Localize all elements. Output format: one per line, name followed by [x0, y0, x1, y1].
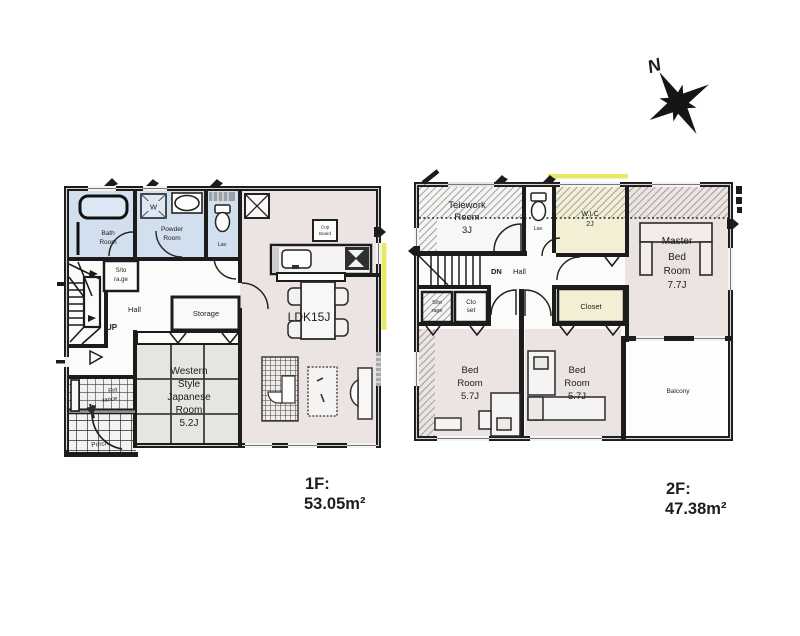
svg-text:Clo: Clo — [466, 299, 476, 306]
svg-text:47.38m²: 47.38m² — [665, 500, 727, 518]
svg-text:1F:: 1F: — [305, 475, 330, 493]
svg-text:Room: Room — [564, 378, 589, 389]
svg-text:W: W — [150, 203, 158, 212]
svg-text:S/to: S/to — [116, 268, 127, 274]
svg-text:2J: 2J — [586, 221, 593, 228]
svg-text:5.7J: 5.7J — [568, 391, 586, 402]
svg-text:Room: Room — [457, 378, 482, 389]
svg-text:ra.ge: ra.ge — [114, 277, 128, 283]
svg-text:Japanese: Japanese — [167, 392, 211, 403]
svg-text:Lav: Lav — [218, 242, 227, 248]
svg-text:W.I.C: W.I.C — [581, 211, 598, 218]
svg-text:Style: Style — [178, 379, 201, 390]
svg-text:Bath: Bath — [101, 230, 115, 237]
svg-text:Board: Board — [319, 231, 332, 236]
svg-text:Western: Western — [170, 366, 207, 377]
svg-text:Room: Room — [99, 239, 116, 246]
svg-text:3J: 3J — [462, 225, 472, 236]
svg-text:Powder: Powder — [161, 226, 184, 233]
svg-text:2F:: 2F: — [666, 480, 691, 498]
svg-text:Bed: Bed — [462, 365, 479, 376]
svg-text:Lav: Lav — [534, 226, 543, 232]
svg-text:S/to: S/to — [432, 300, 442, 306]
svg-text:rage: rage — [431, 308, 442, 314]
svg-text:Room: Room — [664, 266, 691, 277]
svg-text:Room: Room — [176, 405, 203, 416]
svg-text:Balcony: Balcony — [666, 388, 690, 395]
svg-text:Hall: Hall — [513, 267, 526, 276]
svg-text:Bed: Bed — [569, 365, 586, 376]
svg-text:UP: UP — [106, 323, 118, 332]
svg-text:Hall: Hall — [128, 305, 141, 314]
svg-text:Room: Room — [163, 235, 180, 242]
svg-text:DN: DN — [491, 267, 502, 276]
svg-text:Bed: Bed — [668, 252, 686, 263]
svg-text:5.7J: 5.7J — [461, 391, 479, 402]
svg-text:Telework: Telework — [448, 200, 486, 211]
svg-text:Closet: Closet — [580, 302, 602, 311]
svg-text:5.2J: 5.2J — [180, 418, 199, 429]
svg-text:LDK15J: LDK15J — [288, 310, 331, 324]
svg-text:Room: Room — [454, 212, 479, 223]
svg-text:7.7J: 7.7J — [668, 280, 687, 291]
svg-text:Storage: Storage — [193, 309, 219, 318]
svg-text:Master: Master — [662, 236, 693, 247]
svg-text:Cup: Cup — [321, 225, 330, 230]
svg-text:53.05m²: 53.05m² — [304, 495, 366, 513]
svg-text:set: set — [467, 307, 476, 314]
